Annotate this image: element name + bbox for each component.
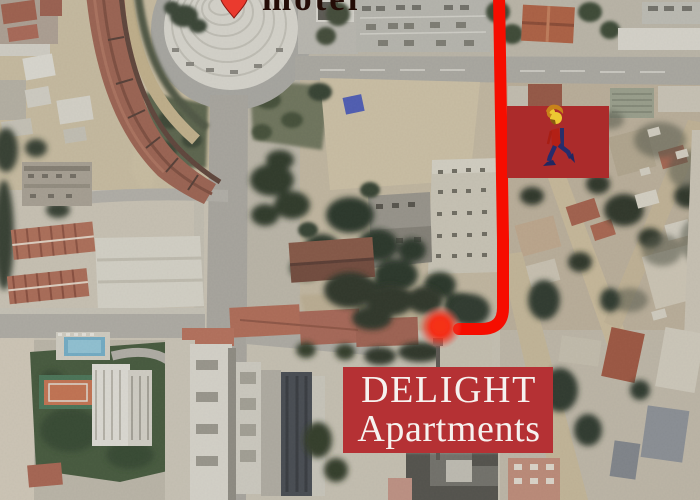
- svg-text:DELIGHT: DELIGHT: [361, 369, 537, 411]
- svg-text:Apartments: Apartments: [357, 408, 540, 450]
- svg-text:motel: motel: [262, 0, 361, 18]
